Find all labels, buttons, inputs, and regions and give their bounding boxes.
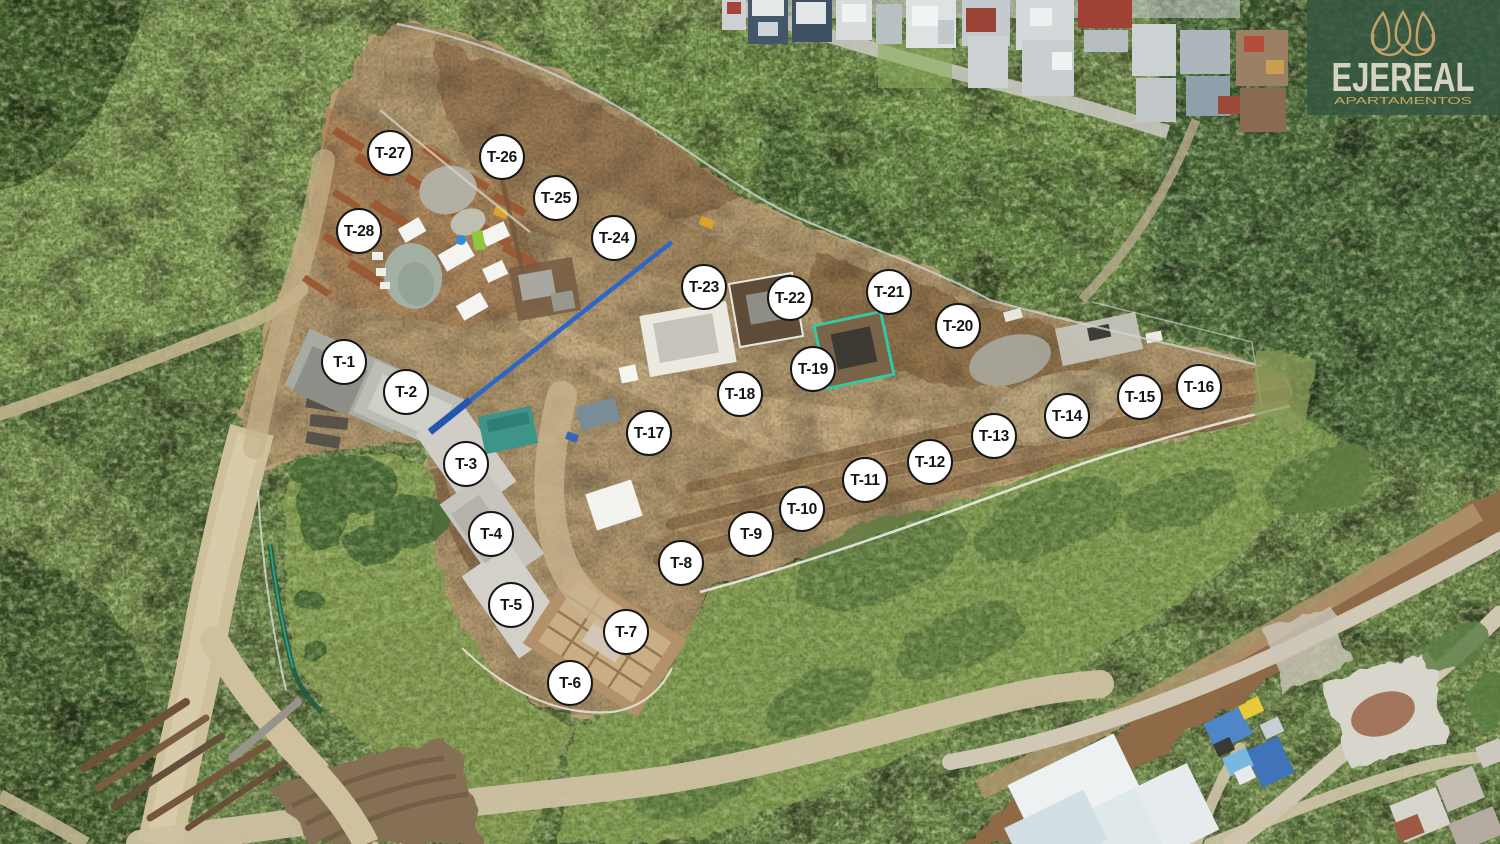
svg-text:T-20: T-20 [943,318,973,335]
svg-text:APARTAMENTOS: APARTAMENTOS [1334,95,1472,107]
svg-text:T-6: T-6 [559,675,581,692]
svg-text:EJEREAL: EJEREAL [1332,54,1475,100]
svg-text:T-14: T-14 [1052,408,1083,425]
svg-text:T-15: T-15 [1125,389,1156,406]
svg-text:T-2: T-2 [395,384,417,401]
svg-text:T-7: T-7 [615,624,637,641]
svg-text:T-9: T-9 [740,526,762,543]
svg-text:T-3: T-3 [455,456,477,473]
svg-text:T-12: T-12 [915,454,945,471]
svg-text:T-24: T-24 [599,230,630,247]
svg-text:T-28: T-28 [344,223,375,240]
svg-text:T-11: T-11 [850,472,880,489]
svg-text:T-8: T-8 [670,555,692,572]
svg-text:T-4: T-4 [480,526,502,543]
svg-text:T-5: T-5 [500,597,522,614]
svg-text:T-23: T-23 [689,279,720,296]
svg-text:T-26: T-26 [487,149,518,166]
svg-text:T-16: T-16 [1184,379,1215,396]
svg-text:T-13: T-13 [979,428,1010,445]
svg-text:T-17: T-17 [634,425,664,442]
svg-text:T-1: T-1 [333,354,355,371]
svg-text:T-25: T-25 [541,190,572,207]
svg-text:T-18: T-18 [725,386,756,403]
svg-text:T-21: T-21 [874,284,905,301]
svg-text:T-10: T-10 [787,501,817,518]
svg-text:T-27: T-27 [375,145,405,162]
svg-text:T-19: T-19 [798,361,829,378]
svg-text:T-22: T-22 [775,290,805,307]
